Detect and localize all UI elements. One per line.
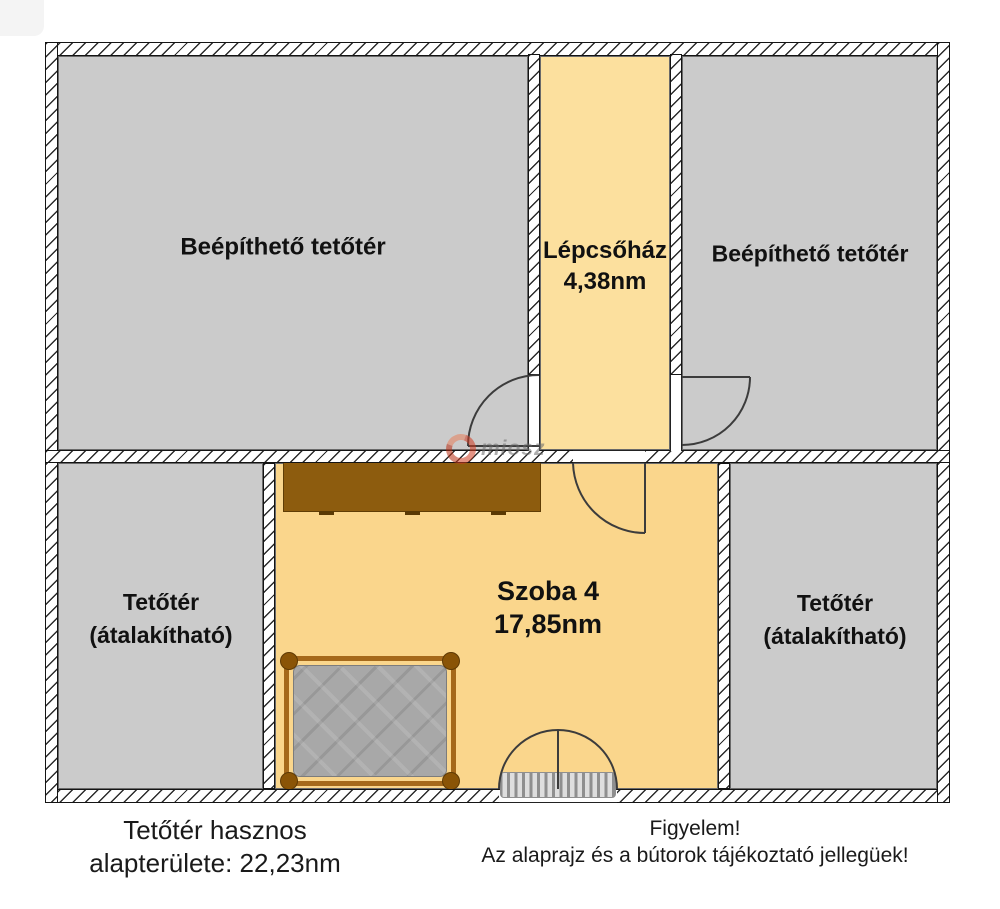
- room-name: Tetőtér: [89, 586, 232, 619]
- room-area: 4,38nm: [543, 266, 667, 297]
- bed-post: [280, 652, 298, 670]
- wall-room4-right: [718, 463, 730, 789]
- door-opening-staircase-right: [670, 375, 682, 451]
- wardrobe-knob: [405, 511, 420, 515]
- caption-line: Az alaprajz és a bútorok tájékoztató jel…: [440, 842, 950, 869]
- label-attic-top-right: Beépíthető tetőtér: [712, 238, 909, 271]
- caption-line: Tetőtér hasznos: [45, 814, 385, 847]
- label-staircase: Lépcsőház 4,38nm: [543, 235, 667, 297]
- wardrobe: [283, 461, 541, 512]
- label-attic-bottom-right: Tetőtér (átalakítható): [763, 587, 906, 653]
- page-corner-shade: [0, 0, 44, 36]
- room-area: 17,85nm: [494, 608, 602, 641]
- watermark-logo-icon: [441, 429, 481, 469]
- wall-outer-bottom: [45, 789, 950, 803]
- bed-post: [280, 772, 298, 790]
- wall-outer-right: [937, 42, 950, 803]
- room-note: (átalakítható): [763, 620, 906, 653]
- wall-outer-left: [45, 42, 58, 803]
- wall-room4-left: [263, 463, 275, 789]
- mattress: [293, 665, 447, 777]
- caption-line: Figyelem!: [440, 815, 950, 842]
- room-name: Beépíthető tetőtér: [180, 234, 385, 261]
- bed-post: [442, 652, 460, 670]
- watermark-text: miosz: [481, 437, 546, 461]
- door-opening-room4: [573, 450, 645, 463]
- wall-staircase-right: [670, 54, 682, 375]
- room-name: Lépcsőház: [543, 235, 667, 266]
- wall-outer-top: [45, 42, 950, 56]
- wardrobe-knob: [319, 511, 334, 515]
- bed: [284, 656, 456, 786]
- room-name: Tetőtér: [763, 587, 906, 620]
- caption-disclaimer: Figyelem! Az alaprajz és a bútorok tájék…: [440, 815, 950, 869]
- label-attic-bottom-left: Tetőtér (átalakítható): [89, 586, 232, 652]
- radiator: [500, 772, 616, 798]
- room-note: (átalakítható): [89, 619, 232, 652]
- room-name: Beépíthető tetőtér: [712, 241, 909, 267]
- caption-line: alapterülete: 22,23nm: [45, 847, 385, 880]
- wall-staircase-left: [528, 54, 540, 375]
- room-name: Szoba 4: [494, 575, 602, 608]
- watermark: miosz: [446, 434, 546, 464]
- floorplan-page: miosz Beépíthető tetőtér Lépcsőház 4,38n…: [0, 0, 1000, 909]
- label-room4: Szoba 4 17,85nm: [494, 575, 602, 641]
- caption-usable-area: Tetőtér hasznos alapterülete: 22,23nm: [45, 814, 385, 880]
- wardrobe-knob: [491, 511, 506, 515]
- bed-post: [442, 772, 460, 790]
- label-attic-top-left: Beépíthető tetőtér: [180, 232, 385, 263]
